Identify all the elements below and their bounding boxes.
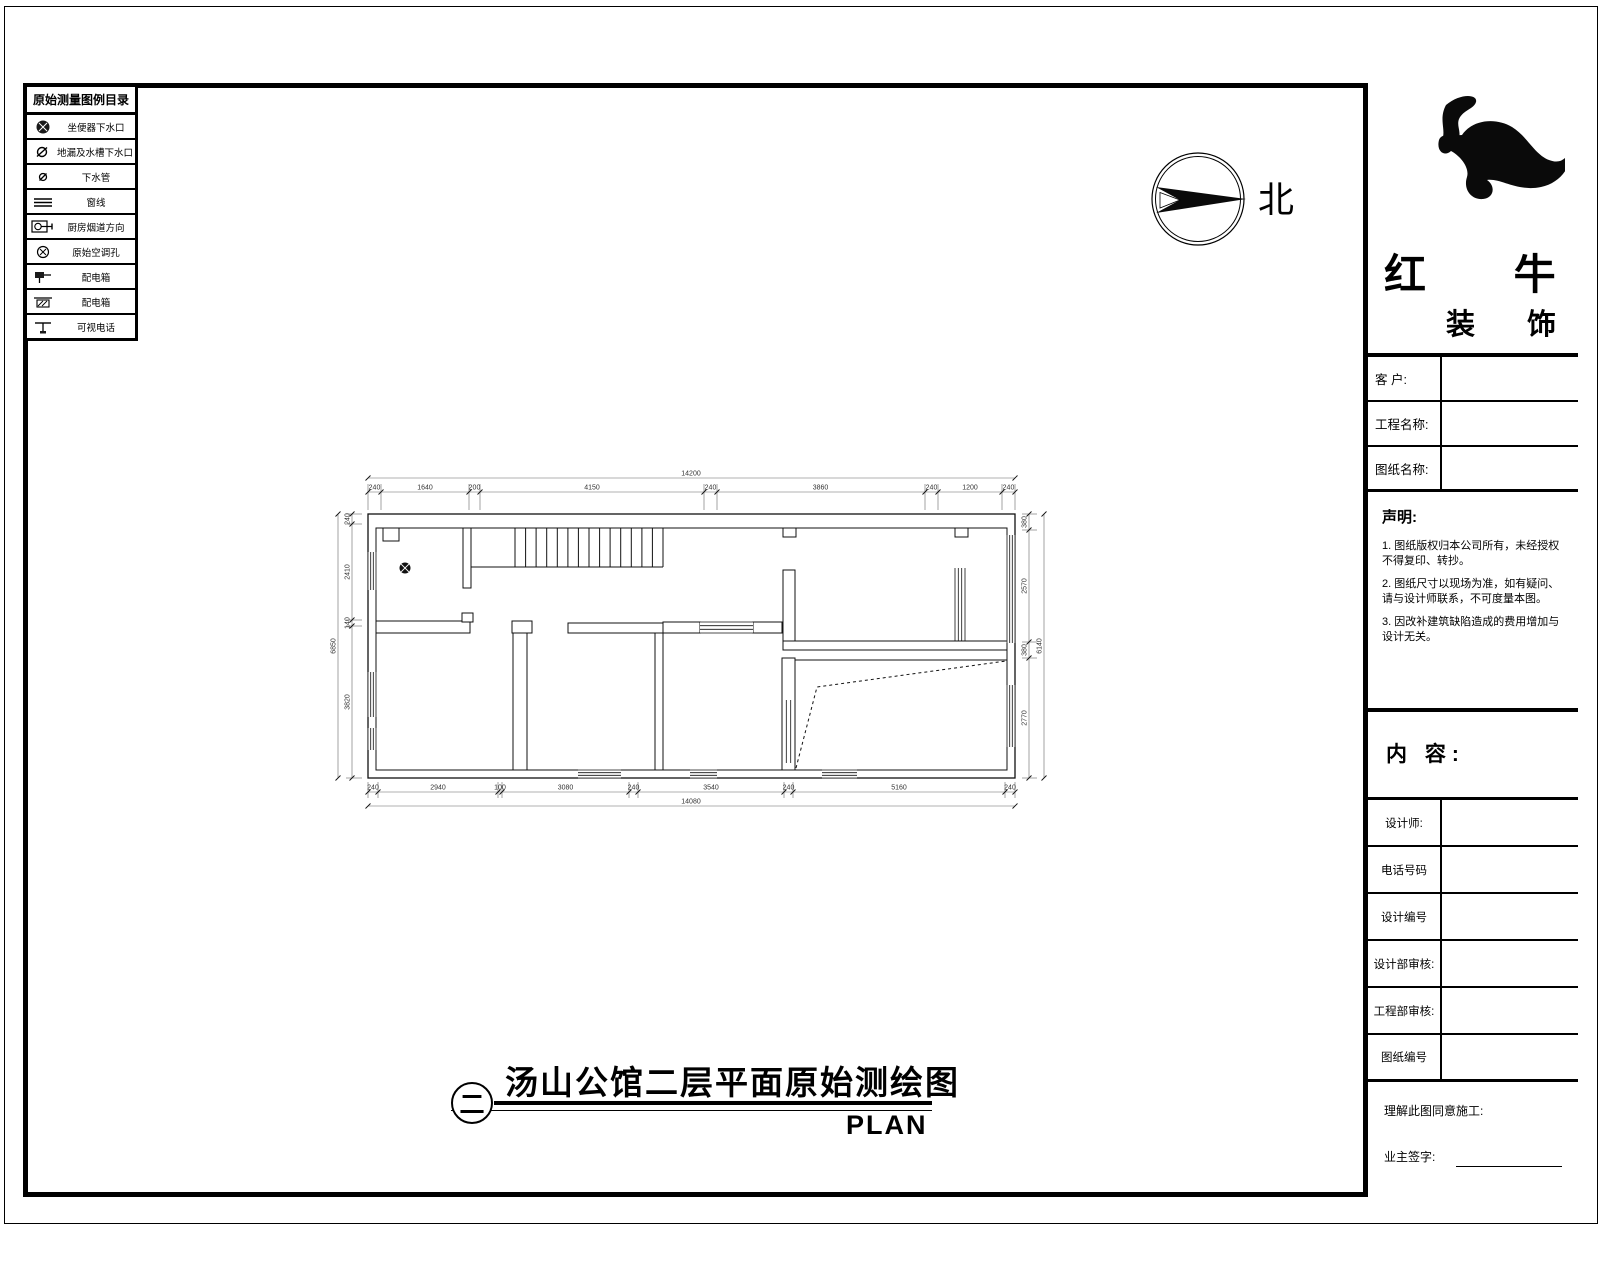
- bull-logo-icon: [1390, 91, 1565, 241]
- info-row-design-dept-review: 设计部审核:: [1368, 941, 1578, 988]
- signature-line: [1456, 1166, 1562, 1167]
- svg-text:140: 140: [345, 617, 352, 629]
- statement-list: 1. 图纸版权归本公司所有，未经授权不得复印、转抄。 2. 图纸尺寸以现场为准，…: [1382, 539, 1568, 645]
- statement-section: 声明: 1. 图纸版权归本公司所有，未经授权不得复印、转抄。 2. 图纸尺寸以现…: [1368, 492, 1578, 712]
- legend-row-video-phone: 可视电话: [27, 315, 135, 338]
- dim-right-overall: 6140: [1037, 638, 1044, 654]
- dim-left-overall: 6850: [331, 638, 338, 654]
- floor-plan: 14200 240 1640 200 4150 240 3860 240 120…: [325, 440, 1065, 840]
- drawing-title: 汤山公馆二层平面原始测绘图: [505, 1056, 925, 1104]
- svg-text:3860: 3860: [813, 485, 829, 492]
- info-row-drawing-number: 图纸编号: [1368, 1035, 1578, 1082]
- floor-drain-icon: [27, 144, 57, 160]
- svg-text:240: 240: [783, 785, 795, 792]
- legend-row-window-line: 窗线: [27, 190, 135, 215]
- svg-text:2410: 2410: [345, 564, 352, 580]
- svg-text:240: 240: [345, 513, 352, 525]
- field-value: [1442, 447, 1578, 489]
- legend-row-drain-pipe: 下水管: [27, 165, 135, 190]
- statement-heading: 声明:: [1382, 506, 1568, 527]
- toilet-drain-icon: [27, 118, 59, 136]
- svg-text:2940: 2940: [430, 785, 446, 792]
- kitchen-flue-icon: [27, 218, 59, 235]
- field-row-drawing-name: 图纸名称:: [1368, 447, 1578, 492]
- statement-item: 1. 图纸版权归本公司所有，未经授权不得复印、转抄。: [1382, 539, 1568, 569]
- sheet-number-badge: 二: [451, 1082, 493, 1124]
- info-row-design-number: 设计编号: [1368, 894, 1578, 941]
- field-row-project-name: 工程名称:: [1368, 402, 1578, 447]
- svg-text:240: 240: [367, 785, 379, 792]
- north-compass-icon: [1152, 153, 1246, 245]
- drawing-sheet: { "colors": {"ink": "#000000", "paper": …: [0, 0, 1600, 1280]
- field-label: 图纸名称:: [1368, 447, 1442, 489]
- drain-pipe-icon: [27, 170, 59, 184]
- svg-text:240: 240: [705, 485, 717, 492]
- svg-text:380: 380: [1022, 644, 1029, 656]
- brand-suffix: 装 饰: [1446, 301, 1578, 343]
- north-label: 北: [1258, 179, 1294, 220]
- dimension-labels: 14200 240 1640 200 4150 240 3860 240 120…: [331, 471, 1044, 806]
- svg-text:2770: 2770: [1022, 710, 1029, 726]
- svg-text:1640: 1640: [417, 485, 433, 492]
- plan-interior-walls: [376, 528, 1007, 770]
- svg-text:240: 240: [926, 485, 938, 492]
- toilet-drain-symbol: [400, 563, 411, 574]
- stairs: [471, 528, 663, 567]
- svg-text:3080: 3080: [558, 785, 574, 792]
- company-logo-block: 红 牛 装 饰: [1368, 83, 1578, 357]
- ac-hole-icon: [27, 244, 59, 260]
- north-arrow: 北: [1146, 147, 1316, 258]
- field-row-client: 客 户:: [1368, 357, 1578, 402]
- svg-text:2570: 2570: [1022, 578, 1029, 594]
- svg-text:1200: 1200: [962, 485, 978, 492]
- info-row-engineering-dept-review: 工程部审核:: [1368, 988, 1578, 1035]
- dim-top-overall: 14200: [681, 471, 701, 478]
- video-phone-icon: [27, 319, 59, 335]
- legend-box: 原始测量图例目录 坐便器下水口 地漏及水槽下水口 下水管 窗线 厨房烟道方向 原: [24, 84, 138, 341]
- window-line-icon: [27, 196, 59, 208]
- info-row-designer: 设计师:: [1368, 800, 1578, 847]
- field-value: [1442, 402, 1578, 445]
- bottom-right-room: [795, 660, 1007, 770]
- sheet-number: 二: [459, 1085, 484, 1121]
- field-label: 客 户:: [1368, 357, 1442, 400]
- legend-row-floor-drain: 地漏及水槽下水口: [27, 140, 135, 165]
- svg-text:240: 240: [369, 485, 381, 492]
- svg-text:240: 240: [628, 785, 640, 792]
- svg-text:3820: 3820: [345, 694, 352, 710]
- field-value: [1442, 357, 1578, 400]
- agree-label: 理解此图同意施工:: [1384, 1102, 1483, 1119]
- legend-row-distribution-box-2: 配电箱: [27, 290, 135, 315]
- content-heading: 内 容:: [1368, 712, 1578, 800]
- svg-text:240: 240: [1003, 485, 1015, 492]
- svg-text:3540: 3540: [703, 785, 719, 792]
- field-label: 工程名称:: [1368, 402, 1442, 445]
- info-row-phone: 电话号码: [1368, 847, 1578, 894]
- legend-row-toilet-drain: 坐便器下水口: [27, 115, 135, 140]
- svg-text:100: 100: [494, 785, 506, 792]
- legend-row-kitchen-flue: 厨房烟道方向: [27, 215, 135, 240]
- legend-title: 原始测量图例目录: [27, 87, 135, 115]
- svg-text:5160: 5160: [891, 785, 907, 792]
- owner-signature-label: 业主签字:: [1384, 1148, 1435, 1165]
- statement-item: 3. 因改补建筑缺陷造成的费用增加与设计无关。: [1382, 615, 1568, 645]
- brand-name: 红 牛: [1384, 241, 1594, 302]
- drawing-subtitle: PLAN: [846, 1110, 928, 1141]
- legend-row-distribution-box: 配电箱: [27, 265, 135, 290]
- distribution-box2-icon: [27, 294, 59, 310]
- statement-item: 2. 图纸尺寸以现场为准，如有疑问、请与设计师联系，不可度量本图。: [1382, 577, 1568, 607]
- svg-text:4150: 4150: [584, 485, 600, 492]
- svg-text:240: 240: [1004, 785, 1016, 792]
- legend-row-ac-hole: 原始空调孔: [27, 240, 135, 265]
- title-block: 红 牛 装 饰 客 户: 工程名称: 图纸名称: 声明: 1. 图纸版权归本公司…: [1363, 83, 1578, 1197]
- svg-text:380: 380: [1022, 516, 1029, 528]
- distribution-box-icon: [27, 269, 59, 285]
- signature-section: 理解此图同意施工: 业主签字:: [1368, 1082, 1578, 1197]
- svg-text:200: 200: [469, 485, 481, 492]
- dim-bottom-overall: 14080: [681, 799, 701, 806]
